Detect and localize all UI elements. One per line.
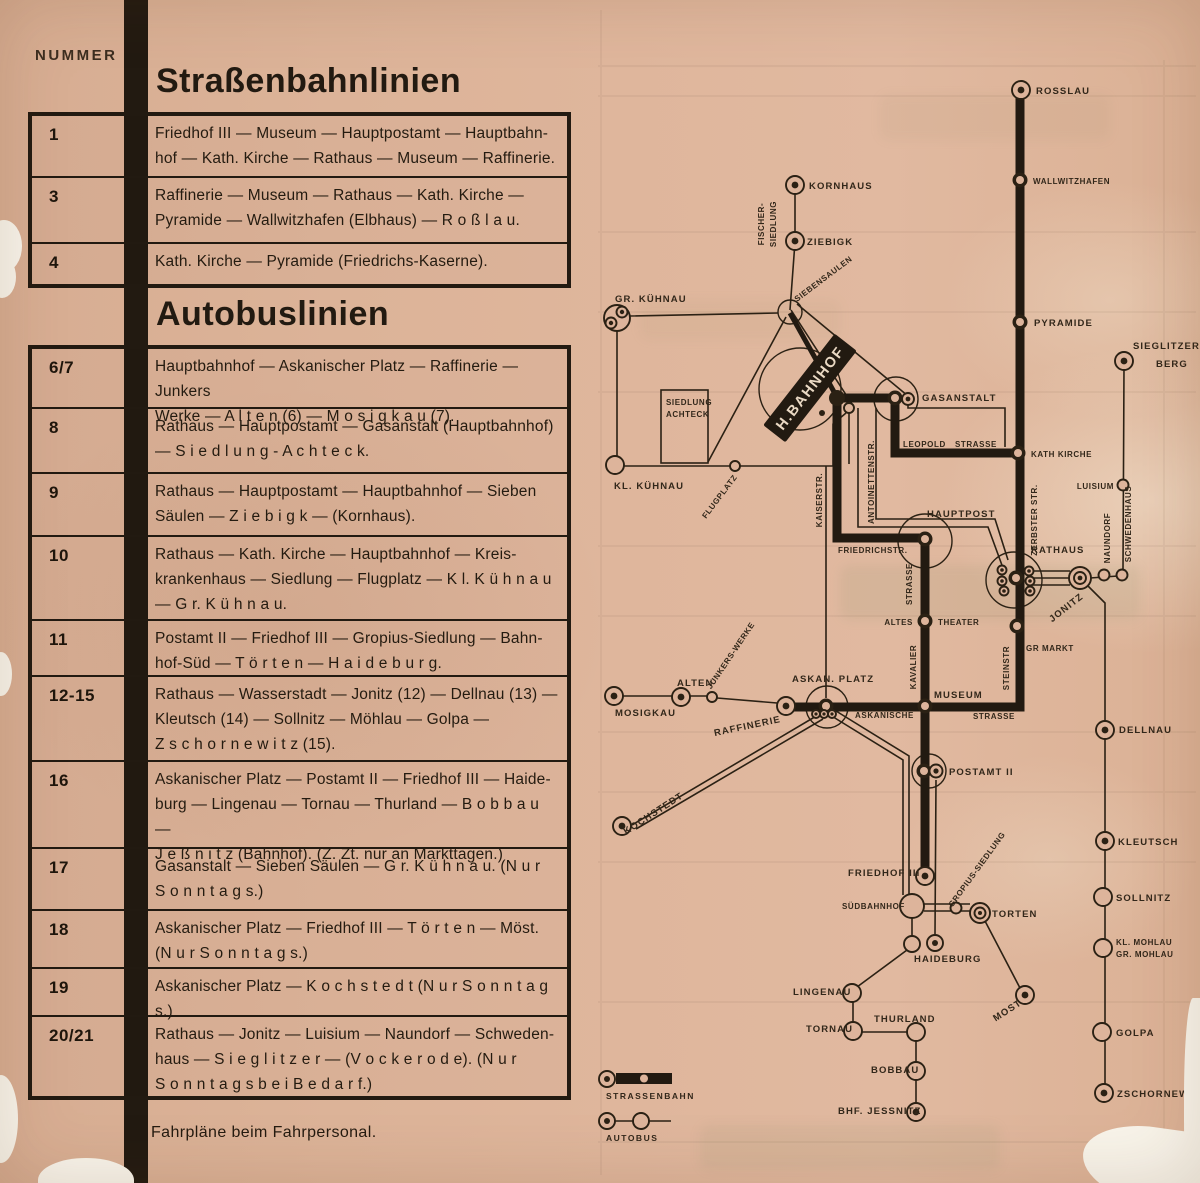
- line-number: 8: [32, 409, 128, 472]
- table-row: 20/21 Rathaus — Jonitz — Luisium — Naund…: [32, 1015, 567, 1096]
- line-number: 4: [32, 244, 128, 284]
- line-number: 11: [32, 621, 128, 675]
- legend-bus-stop-icon: [633, 1113, 649, 1129]
- map-label-kochstedt: KOCHSTEDT: [622, 790, 686, 837]
- station-schwedenhaus: [1117, 570, 1128, 581]
- map-label-gr-markt: GR MARKT: [1026, 644, 1074, 653]
- line-number: 16: [32, 762, 128, 847]
- map-label-sieglitzer-1: SIEGLITZER: [1133, 341, 1200, 352]
- map-label-askanische: ASKANISCHE: [855, 711, 914, 720]
- line-route: Rathaus — Hauptpostamt — Gasanstalt (Hau…: [128, 409, 567, 472]
- map-label-fischer-siedlung-2: SIEDLUNG: [769, 201, 778, 247]
- map-label-askanische-strasse: STRASSE: [973, 712, 1015, 721]
- map-label-jonitz: JONITZ: [1047, 591, 1086, 625]
- line-route: Hauptbahnhof — Askanischer Platz — Raffi…: [128, 349, 567, 407]
- terminal-stations: [604, 81, 1133, 1121]
- station-kl-kuhnau: [606, 456, 624, 474]
- table-row: 17 Gasanstalt — Sieben Säulen — G r. K ü…: [32, 847, 567, 909]
- map-label-torten: TORTEN: [992, 909, 1037, 920]
- stop-altes-theater: [918, 614, 933, 629]
- station-dellnau: [1096, 721, 1114, 739]
- legend-tram-label: STRASSENBAHN: [606, 1091, 695, 1101]
- nummer-header: NUMMER: [35, 47, 118, 64]
- station-sieglitzer-berg: [1115, 352, 1133, 370]
- map-label-antoinettenstr: ANTOINETTENSTR.: [867, 440, 876, 524]
- line-number: 17: [32, 849, 128, 909]
- map-label-kavalier-strasse: STRASSE: [905, 563, 914, 605]
- line-number: 20/21: [32, 1017, 128, 1096]
- map-label-haideburg: HAIDEBURG: [914, 954, 981, 965]
- map-label-steinstr: STEINSTR: [1002, 646, 1011, 690]
- line-number: 10: [32, 537, 128, 619]
- station-hauptbahnhof-bus: [844, 403, 854, 413]
- map-label-bhf-jessnitz: BHF. JESSNITZ: [838, 1106, 921, 1117]
- line-route: Rathaus — Wasserstadt — Jonitz (12) — De…: [128, 677, 567, 760]
- map-label-gropius: GROPIUS-SIEDLUNG: [947, 830, 1007, 909]
- map-label-rosslau: ROSSLAU: [1036, 86, 1090, 97]
- stop-wallwitzhafen: [1013, 173, 1028, 188]
- map-label-achteck-1: SIEDLUNG: [666, 398, 712, 407]
- map-label-bobbau: BOBBAU: [871, 1065, 919, 1076]
- table-row: 18 Askanischer Platz — Friedhof III — T …: [32, 909, 567, 967]
- table-row: 19 Askanischer Platz — K o c h s t e d t…: [32, 967, 567, 1015]
- line-route: Kath. Kirche — Pyramide (Friedrichs-Kase…: [128, 244, 567, 284]
- map-label-kleutsch: KLEUTSCH: [1118, 837, 1179, 848]
- line-route: Rathaus — Hauptpostamt — Hauptbahnhof — …: [128, 474, 567, 535]
- line-number: 3: [32, 178, 128, 242]
- station-raffinerie: [777, 697, 795, 715]
- map-label-sieglitzer-2: BERG: [1156, 359, 1188, 370]
- stop-rathaus: [1009, 571, 1024, 586]
- stop-friedrichstr: [918, 532, 933, 547]
- line-route: Rathaus — Kath. Kirche — Hauptbahnhof — …: [128, 537, 567, 619]
- line-route: Rathaus — Jonitz — Luisium — Naundorf — …: [128, 1017, 567, 1096]
- station-mosigkau: [605, 687, 623, 705]
- map-label-mohlau-1: KL. MOHLAU: [1116, 938, 1172, 947]
- map-label-kaiserstr: KAISERSTR.: [815, 473, 824, 527]
- map-label-gasanstalt: GASANSTALT: [922, 393, 997, 404]
- map-label-suedbahnhof: SÜDBAHNHOF: [842, 902, 905, 911]
- station-haideburg: [904, 936, 920, 952]
- stop-kath-kirche: [1011, 446, 1026, 461]
- station-thurland: [907, 1023, 925, 1041]
- map-label-wallwitzhafen: WALLWITZHAFEN: [1033, 177, 1110, 186]
- table-row: 6/7 Hauptbahnhof — Askanischer Platz — R…: [32, 349, 567, 407]
- map-labels: ROSSLAU WALLWITZHAFEN KORNHAUS ZIEBIGK F…: [614, 86, 1200, 1117]
- table-row: 9 Rathaus — Hauptpostamt — Hauptbahnhof …: [32, 472, 567, 535]
- line-number: 6/7: [32, 349, 128, 407]
- map-legend: STRASSENBAHN AUTOBUS: [599, 1071, 695, 1143]
- line-number: 1: [32, 116, 128, 176]
- terminal-gasanstalt: [902, 393, 914, 405]
- bus-section-title: Autobuslinien: [156, 295, 389, 334]
- map-label-dellnau: DELLNAU: [1119, 725, 1172, 736]
- map-label-friedrichstr: FRIEDRICHSTR.: [838, 546, 908, 555]
- station-gr-kuhnau: [604, 305, 630, 331]
- terminal-postamt-2: [930, 765, 943, 778]
- line-route: Gasanstalt — Sieben Säulen — G r. K ü h …: [128, 849, 567, 909]
- table-row: 1 Friedhof III — Museum — Hauptpostamt —…: [32, 116, 567, 176]
- line-route: Friedhof III — Museum — Hauptpostamt — H…: [128, 116, 567, 176]
- map-label-gr-kuhnau: GR. KÜHNAU: [615, 294, 687, 305]
- map-label-leopold-strasse: STRASSE: [955, 440, 997, 449]
- map-label-thurland: THURLAND: [874, 1014, 936, 1025]
- station-naundorf: [1099, 570, 1110, 581]
- map-label-golpa: GOLPA: [1116, 1028, 1155, 1039]
- line-number: 18: [32, 911, 128, 967]
- map-label-tornau: TORNAU: [806, 1024, 853, 1035]
- map-label-askan-platz: ASKAN. PLATZ: [792, 674, 874, 685]
- station-jonitz: [1069, 567, 1091, 589]
- station-alten: [672, 688, 690, 706]
- station-zschornewitz: [1095, 1084, 1113, 1102]
- table-row: 16 Askanischer Platz — Postamt II — Frie…: [32, 760, 567, 847]
- terminal-haideburg: [927, 935, 943, 951]
- station-junkers-werke: [707, 692, 717, 702]
- torn-edge: [1184, 998, 1200, 1183]
- map-label-kl-kuhnau: KL. KÜHNAU: [614, 481, 684, 492]
- table-row: 12-15 Rathaus — Wasserstadt — Jonitz (12…: [32, 675, 567, 760]
- map-label-pyramide: PYRAMIDE: [1034, 318, 1093, 329]
- map-label-mohlau-2: GR. MOHLAU: [1116, 950, 1174, 959]
- map-label-museum: MUSEUM: [934, 690, 983, 701]
- stop-gasanstalt: [888, 391, 903, 406]
- map-label-sollnitz: SOLLNITZ: [1116, 893, 1171, 904]
- map-label-fischer-siedlung-1: FISCHER-: [757, 203, 766, 246]
- station-flugplatz: [730, 461, 740, 471]
- line-route: Askanischer Platz — Friedhof III — T ö r…: [128, 911, 567, 967]
- station-mohlau: [1094, 939, 1112, 957]
- map-label-kavalier: KAVALIER: [909, 645, 918, 690]
- askanischer-platz-bus-cluster: [812, 710, 836, 718]
- map-label-raffinerie: RAFFINERIE: [713, 714, 782, 739]
- station-kleutsch: [1096, 832, 1114, 850]
- map-label-kornhaus: KORNHAUS: [809, 181, 873, 192]
- map-label-schwedenhaus: SCHWEDENHAUS: [1124, 486, 1133, 563]
- table-row: 11 Postamt II — Friedhof III — Gropius-S…: [32, 619, 567, 675]
- line-number: 19: [32, 969, 128, 1015]
- legend-bus-label: AUTOBUS: [606, 1133, 658, 1143]
- map-label-postamt-2: POSTAMT II: [949, 767, 1014, 778]
- map-label-leopold: LEOPOLD: [903, 440, 946, 449]
- station-sollnitz: [1094, 888, 1112, 906]
- map-label-rathaus: RATHAUS: [1031, 545, 1084, 556]
- map-label-hauptpost: HAUPTPOST: [927, 509, 996, 520]
- table-row: 4 Kath. Kirche — Pyramide (Friedrichs-Ka…: [32, 242, 567, 284]
- table-row: 3 Raffinerie — Museum — Rathaus — Kath. …: [32, 176, 567, 242]
- line-number: 12-15: [32, 677, 128, 760]
- map-label-luisium: LUISIUM: [1077, 482, 1114, 491]
- bus-lines-table: 6/7 Hauptbahnhof — Askanischer Platz — R…: [28, 345, 571, 1100]
- line-route: Postamt II — Friedhof III — Gropius-Sied…: [128, 621, 567, 675]
- line-route: Askanischer Platz — Postamt II — Friedho…: [128, 762, 567, 847]
- map-label-ziebigk: ZIEBIGK: [807, 237, 853, 248]
- map-label-naundorf: NAUNDORF: [1103, 513, 1112, 564]
- map-label-theater: THEATER: [938, 618, 979, 627]
- tram-lines-table: 1 Friedhof III — Museum — Hauptpostamt —…: [28, 112, 571, 288]
- station-rosslau: [1012, 81, 1030, 99]
- stop-museum: [918, 699, 933, 714]
- map-label-siebensaulen: SIEBENSAULEN: [793, 254, 854, 303]
- line-number: 9: [32, 474, 128, 535]
- station-kornhaus: [786, 176, 804, 194]
- map-label-altes: ALTES: [884, 618, 913, 627]
- map-label-achteck-2: ACHTECK: [666, 410, 709, 419]
- stop-gr-markt: [1010, 619, 1025, 634]
- map-label-lingenau: LINGENAU: [793, 987, 851, 998]
- line-route: Raffinerie — Museum — Rathaus — Kath. Ki…: [128, 178, 567, 242]
- tram-section-title: Straßenbahnlinien: [156, 62, 461, 101]
- station-torten: [970, 903, 990, 923]
- station-ziebigk: [786, 232, 804, 250]
- map-label-mosigkau: MOSIGKAU: [615, 708, 676, 719]
- map-label-flugplatz: FLUGPLATZ: [700, 473, 739, 520]
- table-row: 10 Rathaus — Kath. Kirche — Hauptbahnhof…: [32, 535, 567, 619]
- footer-note: Fahrpläne beim Fahrpersonal.: [151, 1124, 377, 1142]
- station-golpa: [1093, 1023, 1111, 1041]
- stop-pyramide: [1013, 315, 1028, 330]
- table-row: 8 Rathaus — Hauptpostamt — Gasanstalt (H…: [32, 407, 567, 472]
- timetable-sheet: H.BAHNHOF ROSSLAU WALLWITZHAFEN KORNHAUS…: [0, 0, 1200, 1183]
- line-route: Askanischer Platz — K o c h s t e d t (N…: [128, 969, 567, 1015]
- map-label-kath-kirche: KATH KIRCHE: [1031, 450, 1092, 459]
- map-label-junkers-werke: JUNKERS-WERKE: [705, 621, 756, 691]
- map-label-friedhof-3: FRIEDHOF III: [848, 868, 920, 879]
